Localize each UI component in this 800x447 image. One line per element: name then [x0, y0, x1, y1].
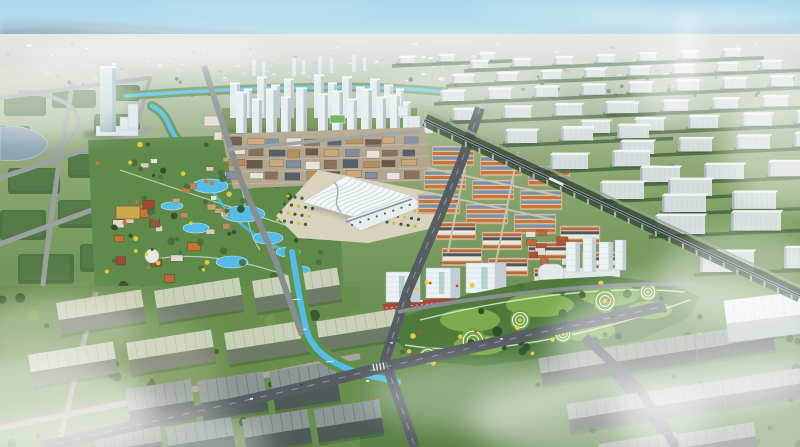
aerial-masterplan-rendering — [0, 0, 800, 447]
aerial-city-rendering-stage — [0, 0, 800, 447]
